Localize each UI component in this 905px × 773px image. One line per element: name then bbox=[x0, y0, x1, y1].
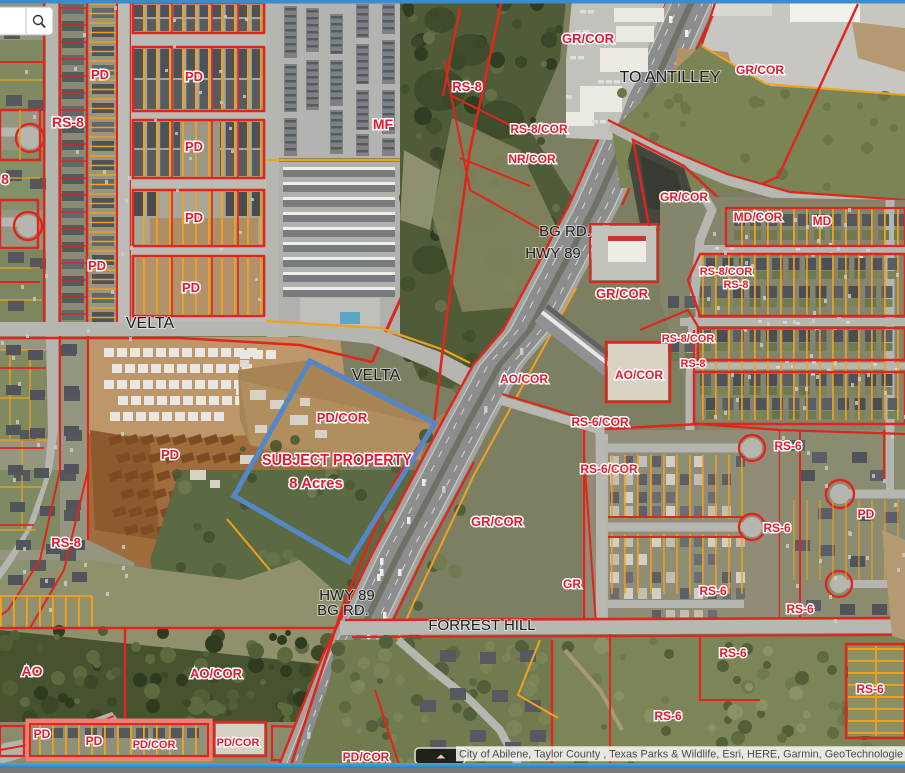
svg-text:GR/COR: GR/COR bbox=[471, 514, 524, 529]
svg-text:PD: PD bbox=[185, 69, 203, 84]
svg-text:PD/COR: PD/COR bbox=[133, 739, 176, 751]
svg-text:RS-8/COR: RS-8/COR bbox=[700, 266, 753, 278]
svg-text:FORREST HILL: FORREST HILL bbox=[428, 617, 535, 634]
svg-text:AO/COR: AO/COR bbox=[190, 666, 243, 681]
svg-text:GR/COR: GR/COR bbox=[660, 190, 708, 204]
svg-text:MD: MD bbox=[813, 214, 832, 228]
svg-text:VELTA: VELTA bbox=[126, 315, 175, 332]
svg-text:GR/COR: GR/COR bbox=[562, 31, 615, 46]
svg-text:RS-6: RS-6 bbox=[856, 682, 884, 696]
svg-text:PD: PD bbox=[86, 734, 103, 748]
svg-text:PD/COR: PD/COR bbox=[343, 750, 390, 764]
svg-text:RS-6/COR: RS-6/COR bbox=[580, 462, 638, 476]
svg-text:PD: PD bbox=[91, 67, 109, 82]
svg-text:PD: PD bbox=[88, 258, 106, 273]
svg-text:PD: PD bbox=[161, 447, 179, 462]
svg-text:RS-6: RS-6 bbox=[763, 521, 791, 535]
svg-text:RS-6: RS-6 bbox=[786, 602, 814, 616]
svg-text:GR/COR: GR/COR bbox=[736, 63, 784, 77]
svg-text:RS-6: RS-6 bbox=[699, 584, 727, 598]
svg-text:NR/COR: NR/COR bbox=[508, 152, 556, 166]
svg-text:PD: PD bbox=[182, 280, 200, 295]
svg-text:BG RD.: BG RD. bbox=[317, 602, 369, 619]
svg-text:AO/COR: AO/COR bbox=[615, 368, 663, 382]
svg-text:PD/COR: PD/COR bbox=[217, 737, 260, 749]
svg-text:RS-8: RS-8 bbox=[452, 79, 482, 94]
svg-text:GR: GR bbox=[563, 577, 581, 591]
svg-text:PD: PD bbox=[185, 210, 203, 225]
svg-text:PD/COR: PD/COR bbox=[317, 410, 368, 425]
svg-text:City of Abilene, Taylor County: City of Abilene, Taylor County , Texas P… bbox=[459, 749, 903, 761]
svg-text:RS-6: RS-6 bbox=[774, 439, 802, 453]
svg-text:AO: AO bbox=[22, 663, 43, 679]
svg-text:PD: PD bbox=[858, 507, 875, 521]
svg-text:GR/COR: GR/COR bbox=[596, 286, 649, 301]
svg-text:TO ANTILLEY: TO ANTILLEY bbox=[619, 69, 720, 86]
svg-text:MD/COR: MD/COR bbox=[734, 210, 783, 224]
svg-text:8: 8 bbox=[1, 171, 9, 187]
svg-text:8 Acres: 8 Acres bbox=[289, 475, 343, 492]
svg-text:RS-8/COR: RS-8/COR bbox=[510, 122, 568, 136]
svg-text:PD: PD bbox=[185, 139, 203, 154]
svg-text:AO/COR: AO/COR bbox=[500, 372, 548, 386]
svg-text:RS-6: RS-6 bbox=[719, 646, 747, 660]
svg-text:HWY 89: HWY 89 bbox=[525, 245, 581, 262]
svg-text:VELTA: VELTA bbox=[352, 367, 401, 384]
svg-text:RS-8: RS-8 bbox=[680, 358, 705, 370]
svg-text:BG RD.: BG RD. bbox=[539, 223, 591, 240]
svg-text:RS-8/COR: RS-8/COR bbox=[662, 333, 715, 345]
svg-text:RS-8: RS-8 bbox=[51, 535, 81, 550]
svg-text:RS-6: RS-6 bbox=[654, 709, 682, 723]
svg-text:RS-8: RS-8 bbox=[723, 279, 748, 291]
svg-text:SUBJECT PROPERTY: SUBJECT PROPERTY bbox=[262, 452, 412, 469]
svg-text:RS-6/COR: RS-6/COR bbox=[571, 415, 629, 429]
svg-text:RS-8: RS-8 bbox=[52, 114, 84, 130]
svg-text:MF: MF bbox=[373, 116, 394, 132]
svg-text:PD: PD bbox=[34, 727, 51, 741]
